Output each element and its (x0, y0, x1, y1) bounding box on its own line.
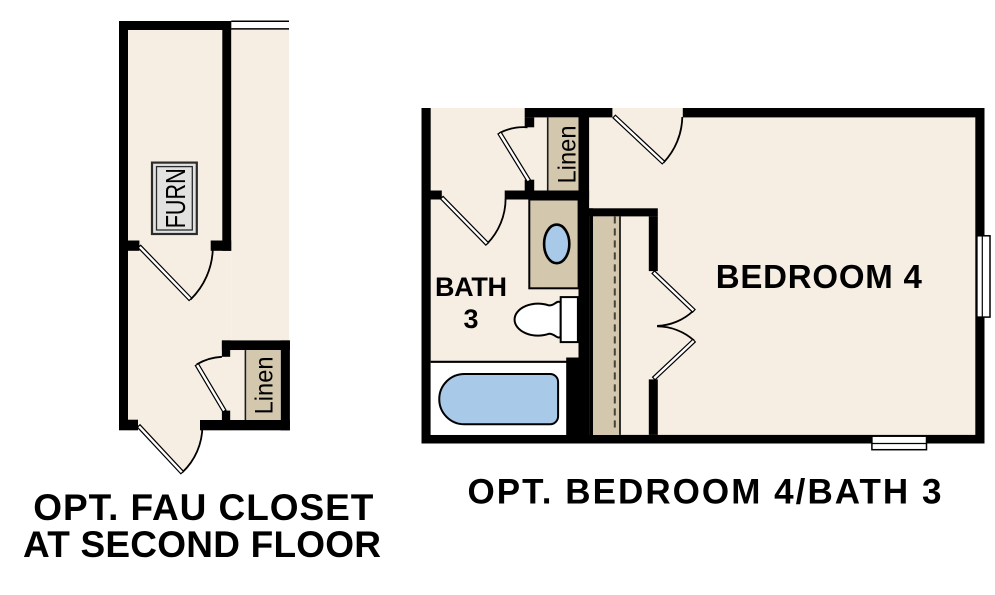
svg-text:Linen: Linen (554, 126, 582, 184)
svg-text:OPT. BEDROOM 4/BATH 3: OPT. BEDROOM 4/BATH 3 (468, 473, 942, 512)
svg-text:AT SECOND FLOOR: AT SECOND FLOOR (23, 524, 381, 565)
svg-text:BEDROOM 4: BEDROOM 4 (716, 258, 923, 295)
svg-text:Linen: Linen (250, 356, 278, 414)
svg-text:BATH: BATH (435, 272, 507, 302)
svg-text:OPT. FAU CLOSET: OPT. FAU CLOSET (33, 487, 373, 528)
svg-text:FURN: FURN (160, 168, 191, 228)
svg-text:3: 3 (463, 304, 478, 334)
